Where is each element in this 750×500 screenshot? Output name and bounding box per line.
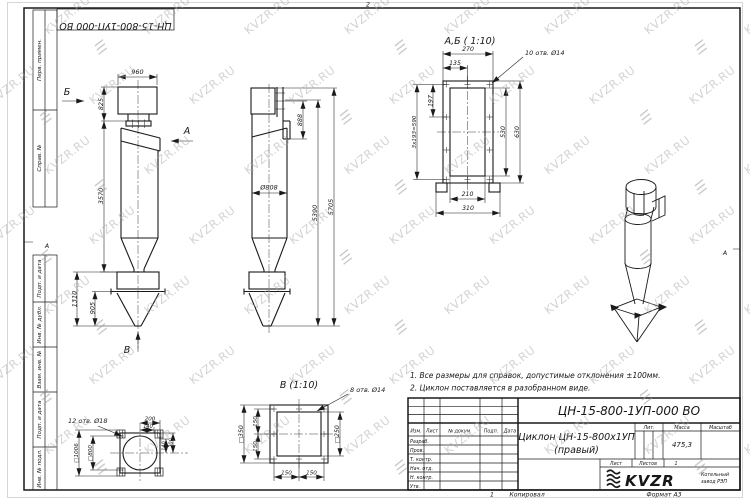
kvzr-logo-icon bbox=[607, 470, 620, 487]
notes: 1. Все размеры для справок, допустимые о… bbox=[410, 371, 660, 393]
zone-left-label: А bbox=[44, 243, 49, 250]
dim-label-270: 270 bbox=[462, 46, 474, 53]
title-block: ЦН-15-800-1УП-000 ВО Циклон ЦН-15-800х1У… bbox=[408, 398, 740, 499]
margin-cell-vzam-inv: Взам. инв. № bbox=[37, 350, 43, 388]
titleblock-mass-value: 475,3 bbox=[672, 441, 692, 449]
titleblock-lit-label: Лит. bbox=[642, 425, 654, 431]
zone-bottom-label: 1 bbox=[490, 492, 494, 499]
titleblock-row-razrab: Разраб. bbox=[410, 439, 429, 445]
kvzr-logo-text: KVZR bbox=[625, 472, 675, 490]
view-arrow-v: В bbox=[124, 345, 131, 356]
dim-label-5705: 5705 bbox=[327, 199, 335, 216]
titleblock-col-podp: Подп. bbox=[484, 429, 499, 435]
margin-cell-inv-dubl: Инв. № дубл. bbox=[37, 305, 43, 343]
detail-v-title: В (1:10) bbox=[280, 380, 318, 391]
dim-label-310: 310 bbox=[462, 205, 474, 212]
margin-cell-inv-podl: Инв. № подл. bbox=[37, 449, 43, 488]
drawing-sheet: 2 1 А А ЦН-15-800-1УП-000 ВО Перв. приме… bbox=[0, 0, 750, 500]
dim-label-1006: □1006 bbox=[74, 443, 80, 463]
margin-cell-perv-primen: Перв. примен. bbox=[37, 39, 43, 81]
titleblock-designation: ЦН-15-800-1УП-000 ВО bbox=[558, 404, 700, 418]
detail-ab-holes-note: 10 отв. Ø14 bbox=[525, 49, 564, 57]
flange-holes-note: 12 отв. Ø18 bbox=[68, 417, 107, 425]
titleblock-sheets-label: Листов bbox=[638, 461, 657, 467]
dim-label-5390: 5390 bbox=[311, 205, 319, 222]
isometric-view bbox=[611, 180, 666, 343]
dim-label-140-right: 140 bbox=[162, 441, 168, 451]
dim-label-200-right: 200 bbox=[169, 438, 175, 448]
dim-label-800: □800 bbox=[88, 445, 94, 461]
dim-label-150-b1: 150 bbox=[281, 471, 292, 477]
side-view: Ø808 888 5390 5705 bbox=[244, 84, 340, 334]
dim-label-210: 210 bbox=[462, 191, 474, 198]
dim-label-960: 960 bbox=[131, 68, 143, 76]
margin-cell-sprav-no: Справ. № bbox=[37, 144, 43, 171]
doc-number-top: ЦН-15-800-1УП-000 ВО bbox=[59, 20, 172, 31]
titleblock-row-prov: Пров. bbox=[410, 448, 424, 454]
detail-v-view: В (1:10) 8 отв. Ø14 □350 150 150 □250 15… bbox=[238, 380, 385, 481]
dim-label-197: 197 bbox=[428, 95, 435, 107]
format-label: Формат А3 bbox=[646, 492, 681, 499]
note-line-1: 1. Все размеры для справок, допустимые о… bbox=[410, 371, 660, 380]
margin-labels: Перв. примен. Справ. № Подп. и дата Инв.… bbox=[37, 39, 43, 488]
detail-ab-view: А,Б ( 1:10) 10 отв. Ø14 270 135 197 3х19… bbox=[412, 36, 564, 217]
dim-label-135: 135 bbox=[449, 60, 461, 67]
titleblock-row-nachotd: Нач. отд. bbox=[410, 466, 433, 472]
titleblock-row-nkontr: Н. контр. bbox=[410, 475, 433, 481]
dim-label-630: 630 bbox=[514, 126, 521, 138]
dim-label-530: 530 bbox=[500, 126, 507, 138]
dim-label-d808: Ø808 bbox=[259, 184, 278, 192]
dim-label-250: □250 bbox=[334, 425, 341, 443]
org-name-line2: завод РЭП bbox=[701, 479, 727, 485]
margin-cell-podp-data-2: Подп. и дата bbox=[37, 400, 43, 439]
dim-label-350: □350 bbox=[238, 425, 245, 443]
titleblock-sheet-label: Лист bbox=[609, 461, 622, 467]
dim-label-3570: 3570 bbox=[97, 188, 105, 205]
titleblock-row-utv: Утв. bbox=[410, 484, 420, 490]
front-view: 960 825 3570 1310 905 Б А В bbox=[62, 68, 193, 356]
view-arrow-a: А bbox=[183, 126, 191, 137]
dim-label-150-b2: 150 bbox=[306, 471, 317, 477]
zone-right-label: А bbox=[722, 250, 727, 257]
copied-label: Копировал bbox=[509, 492, 544, 499]
note-line-2: 2. Циклон поставляется в разобранном вид… bbox=[410, 384, 590, 393]
bottom-flange-view: 12 отв. Ø18 200 140 140 200 □1006 □800 bbox=[68, 417, 188, 482]
drawing-canvas: 2 1 А А ЦН-15-800-1УП-000 ВО Перв. приме… bbox=[0, 0, 750, 500]
titleblock-mass-label: Масса bbox=[674, 425, 689, 431]
dim-label-888: 888 bbox=[296, 114, 304, 126]
zone-top-label: 2 bbox=[366, 2, 370, 9]
titleblock-col-data: Дата bbox=[503, 429, 516, 435]
titleblock-name-line1: Циклон ЦН-15-800х1УП bbox=[518, 432, 635, 443]
titleblock-sheets-value: 1 bbox=[674, 461, 677, 467]
dim-label-200-top: 200 bbox=[145, 417, 156, 423]
titleblock-col-doc: № докум. bbox=[447, 429, 472, 435]
margin-cell-podp-data-1: Подп. и дата bbox=[37, 259, 43, 298]
titleblock-scale-label: Масштаб bbox=[709, 425, 732, 431]
titleblock-col-list: Лист bbox=[425, 429, 438, 435]
dim-label-825: 825 bbox=[97, 98, 105, 110]
detail-v-holes-note: 8 отв. Ø14 bbox=[350, 386, 385, 394]
titleblock-col-izm: Изм. bbox=[410, 429, 421, 435]
dim-label-590: 3х193=590 bbox=[412, 115, 418, 148]
dim-label-905: 905 bbox=[89, 302, 97, 314]
dim-label-1310: 1310 bbox=[71, 291, 79, 308]
dim-label-150-l2: 150 bbox=[253, 441, 259, 452]
dim-label-140-top: 140 bbox=[143, 424, 153, 430]
view-arrow-b: Б bbox=[64, 87, 71, 98]
titleblock-row-tkontr: Т. контр. bbox=[410, 457, 432, 463]
org-name-line1: Котельный bbox=[701, 472, 729, 478]
titleblock-name-line2: (правый) bbox=[554, 445, 599, 456]
dim-label-150-l1: 150 bbox=[253, 416, 259, 427]
